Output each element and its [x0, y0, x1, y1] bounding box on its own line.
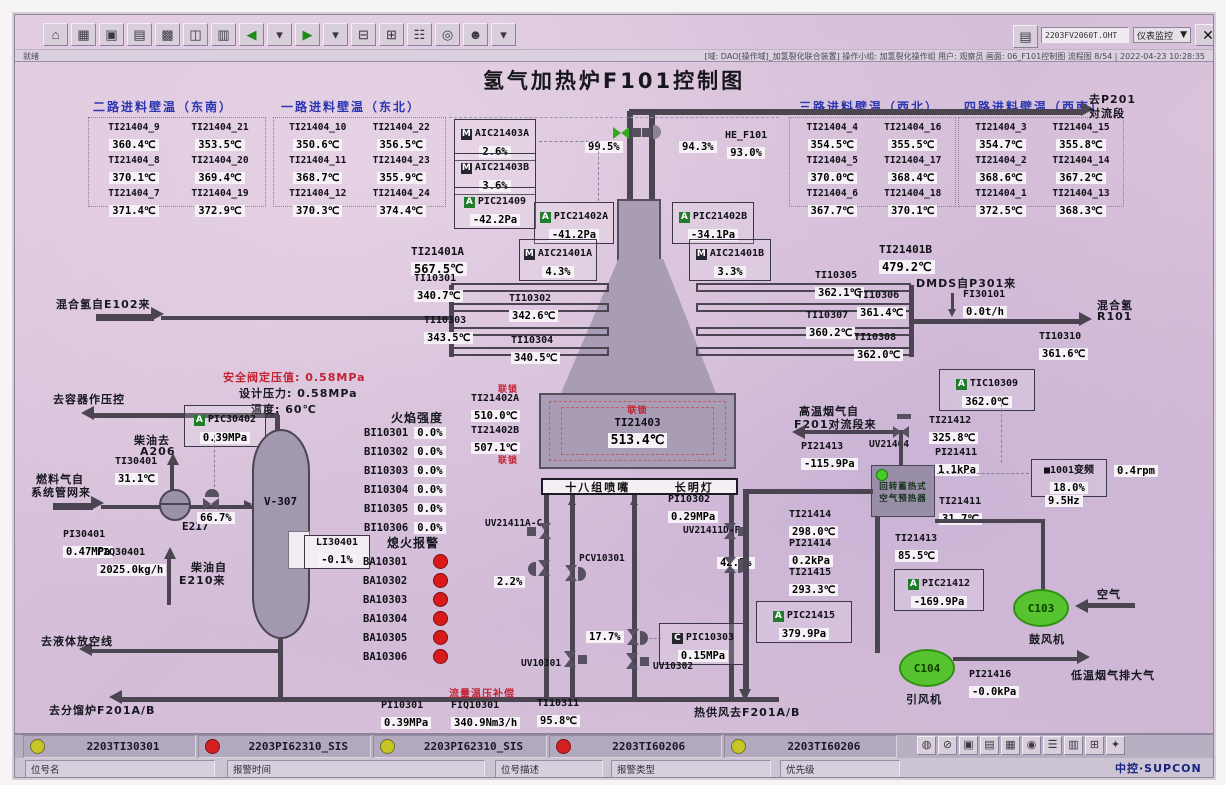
label-mix-h2-in: 混合氢自E102来	[56, 296, 150, 312]
tag-value: 369.4℃	[195, 172, 244, 184]
tag-value: 85.5℃	[895, 550, 938, 562]
flow-arrow	[1079, 312, 1092, 326]
tag-value: 31.1℃	[115, 473, 158, 485]
wall-temp-point[interactable]: TI21404_13 368.3℃	[1041, 188, 1121, 218]
instrument-ti21412[interactable]: TI21412325.8℃	[929, 415, 978, 445]
tag-value: 361.4℃	[857, 307, 906, 319]
tag-label: PI21411	[935, 447, 979, 458]
tag-label: BI10305	[364, 503, 408, 515]
sys-grid[interactable]: ▦	[1001, 736, 1020, 755]
pipe	[911, 319, 1081, 324]
tag-value: 368.6℃	[976, 172, 1025, 184]
label-hot-air-out: 热供风去F201A/B	[694, 704, 800, 720]
instrument-ti21402a[interactable]: TI21402A510.0℃	[471, 393, 520, 423]
mode-badge: A	[194, 415, 205, 426]
tag-label: AIC21401B	[710, 248, 764, 259]
pipe	[749, 489, 873, 494]
wall-temp-point[interactable]: TI21404_12 370.3℃	[276, 188, 360, 218]
tag-value: 340.7℃	[414, 290, 463, 302]
tag-value: 361.6℃	[1039, 348, 1088, 360]
toolbar-page-next[interactable]: ⊞	[379, 23, 404, 46]
toolbar-overview[interactable]: ▦	[71, 23, 96, 46]
toolbar-icon: ▦	[77, 27, 89, 42]
wall-temp-point[interactable]: TI21404_4 354.5℃	[792, 122, 873, 152]
tag-value: 2025.0kg/h	[97, 564, 166, 576]
pipe	[570, 495, 575, 699]
label-safety-set: 安全阀定压值: 0.58MPa	[223, 369, 366, 385]
tag-label: TI21413	[895, 533, 938, 544]
tag-label: TI21404_18	[873, 188, 954, 199]
flame-intensity-row[interactable]: BI10305 0.0%	[364, 499, 446, 518]
sys-misc[interactable]: ✦	[1106, 736, 1125, 755]
sys-screen[interactable]: ▣	[959, 736, 978, 755]
field-tag-desc: 位号描述	[495, 760, 603, 778]
flame-intensity-row[interactable]: BI10304 0.0%	[364, 480, 446, 499]
tag-label: TI10305	[815, 270, 864, 281]
tag-label: TI21404_14	[1041, 155, 1121, 166]
tag-value: 355.9℃	[377, 172, 426, 184]
mode-badge: A	[679, 212, 690, 223]
flow-arrow	[244, 500, 252, 508]
instrument-ti30401[interactable]: TI3040131.1℃	[115, 456, 158, 486]
wall-temp-point[interactable]: TI21404_6 367.7℃	[792, 188, 873, 218]
system-icon: ▤	[984, 739, 994, 751]
tag-value: 0.0%	[414, 503, 445, 515]
label-to-vessel: 去容器作压控	[53, 391, 125, 407]
wall-temp-point[interactable]: TI21404_1 372.5℃	[961, 188, 1041, 218]
burner-group-label: 十八组喷嘴	[565, 479, 630, 495]
panel-combo[interactable]: 仪表监控▼	[1133, 27, 1191, 43]
alarm-banner-cell[interactable]: 2203PI62310_SIS	[373, 735, 546, 758]
instrument-ti21413[interactable]: TI2141385.5℃	[895, 533, 938, 563]
pipe	[1041, 519, 1045, 595]
instrument-li30401[interactable]: LI30401-0.1%	[304, 535, 370, 569]
valve-uv10301[interactable]	[564, 651, 576, 667]
close-button[interactable]: ✕	[1195, 24, 1214, 46]
flameout-alarm-row[interactable]: BA10301	[363, 552, 448, 571]
mode-badge: M	[696, 249, 707, 260]
wall-temp-point[interactable]: TI21404_7 371.4℃	[91, 188, 177, 218]
alarm-banner-cell[interactable]: 2203TI30301	[23, 735, 196, 758]
field-tag-name: 位号名	[25, 760, 215, 778]
tag-label: TI10303	[424, 315, 473, 326]
wall-temp-point[interactable]: TI21404_17 368.4℃	[873, 155, 954, 185]
alarm-dot	[433, 611, 448, 626]
flow-arrow	[568, 497, 576, 505]
tag-value: 362.0℃	[854, 349, 903, 361]
pipe	[91, 649, 279, 653]
wall-temp-point[interactable]: TI21404_24 374.4℃	[360, 188, 444, 218]
alarm-tag: 2203TI60206	[752, 740, 896, 753]
toolbar-book[interactable]: ☷	[407, 23, 432, 46]
valve-pic10303[interactable]	[627, 629, 639, 645]
tag-label: BA10306	[363, 651, 407, 663]
tag-label: TI21404_13	[1041, 188, 1121, 199]
signal-line	[539, 141, 599, 142]
flameout-alarm-list: BA10301 BA10302 BA10303 BA10304 BA10305 …	[363, 552, 448, 666]
toolbar-icon: ⌂	[52, 27, 60, 42]
wall-temp-point[interactable]: TI21404_3 354.7℃	[961, 122, 1041, 152]
instrument-ti21414[interactable]: TI21414298.0℃	[789, 509, 838, 539]
tag-label: PIC21409	[478, 196, 526, 207]
preheater-label-2: 空气预热器	[879, 494, 927, 504]
instrument-ti10303[interactable]: TI10303343.5℃	[424, 315, 473, 345]
damper-a-output: 99.5%	[585, 141, 623, 153]
valve-pcv10301[interactable]	[565, 565, 577, 581]
tag-label: BI10302	[364, 446, 408, 458]
flow-arrow	[739, 689, 751, 701]
system-icon: ⊞	[1090, 739, 1099, 751]
tag-label: TI21404_6	[792, 188, 873, 199]
instrument-ti21403[interactable]: 联锁 TI21403 513.4℃	[541, 403, 734, 448]
burner-valve-a[interactable]	[538, 560, 550, 576]
tag-label: HE_F101	[725, 130, 767, 141]
instrument-ti10311[interactable]: TI1031195.8℃	[537, 698, 580, 728]
tag-value: 0.39MPa	[381, 717, 431, 729]
tag-value: 293.3℃	[789, 584, 838, 596]
valve-actuator	[640, 657, 649, 666]
tag-label: TI10304	[511, 335, 560, 346]
supcon-logo: 中控·SUPCON	[1115, 760, 1202, 776]
mode-badge: A	[773, 611, 784, 622]
tag-value: 0.39MPa	[200, 432, 250, 444]
tag-label: AIC21401A	[538, 248, 592, 259]
wall-temp-point[interactable]: TI21404_16 355.5℃	[873, 122, 954, 152]
tag-label: TI21404_5	[792, 155, 873, 166]
tag-value: 379.9Pa	[779, 628, 829, 640]
toolbar-home[interactable]: ⌂	[43, 23, 68, 46]
toolbar-icon: ☷	[414, 27, 426, 42]
alarm-dot	[433, 573, 448, 588]
toolbar-trend[interactable]: ▤	[127, 23, 152, 46]
toolbar-icon: ☻	[469, 27, 483, 42]
tag-label: PI21414	[789, 538, 833, 549]
tag-label: TI21401A	[411, 245, 467, 258]
damper-valve-b[interactable]	[653, 125, 661, 139]
tag-value: 340.5℃	[511, 352, 560, 364]
tag-label: TI21404_12	[276, 188, 360, 199]
valve-actuator	[640, 631, 648, 645]
screen-file-input[interactable]	[1041, 27, 1129, 43]
wall-temp-point[interactable]: TI21404_9 360.4℃	[91, 122, 177, 152]
tag-label: TI21404_24	[360, 188, 444, 199]
instrument-freq1001[interactable]: ■1001变频18.0%	[1031, 459, 1107, 497]
signal-line	[1001, 399, 1002, 463]
tag-value: 0.0t/h	[963, 306, 1007, 318]
tag-label: TI21403	[541, 416, 734, 429]
wall-temp-point[interactable]: TI21404_21 353.5℃	[177, 122, 263, 152]
tag-label: TI21404_19	[177, 188, 263, 199]
tag-value: 355.5℃	[888, 139, 937, 151]
pipe	[53, 503, 93, 510]
label-blower: 鼓风机	[1029, 631, 1065, 647]
alarm-banner-cell[interactable]: 2203TI60206	[549, 735, 722, 758]
toolbar-faceplate[interactable]: ◫	[183, 23, 208, 46]
instrument-ti21415[interactable]: TI21415293.3℃	[789, 567, 838, 597]
tag-label: TI21404_9	[91, 122, 177, 133]
tag-value: 360.2℃	[806, 327, 855, 339]
freq-hz-value: 9.5Hz	[1045, 495, 1083, 507]
pipe	[953, 657, 1081, 661]
toolbar-group-display[interactable]: ▩	[155, 23, 180, 46]
instrument-tic10309[interactable]: ATIC10309362.0℃	[939, 369, 1035, 411]
sys-horn[interactable]: ◍	[917, 736, 936, 755]
toolbar-page-prev[interactable]: ⊟	[351, 23, 376, 46]
tag-label: AIC21403A	[475, 128, 529, 139]
signal-line	[649, 638, 661, 639]
signal-line	[937, 473, 1029, 474]
label-e210: E210来	[179, 572, 225, 588]
flameout-alarm-row[interactable]: BA10302	[363, 571, 448, 590]
tag-value: 513.4℃	[608, 433, 668, 448]
toolbar-icon: ▾	[500, 27, 507, 42]
instrument-aic21401a[interactable]: MAIC21401A4.3%	[519, 239, 597, 281]
tag-value: -0.1%	[318, 554, 356, 566]
tag-value: 0.2kPa	[789, 555, 833, 567]
fan-c104[interactable]: C104	[899, 649, 955, 687]
valve-uv21411ac[interactable]	[539, 523, 551, 539]
tag-label: PI21416	[969, 669, 1019, 680]
flameout-alarm-row[interactable]: BA10305	[363, 628, 448, 647]
exchanger-e217[interactable]	[159, 489, 191, 521]
instrument-ti21402b[interactable]: TI21402B507.1℃	[471, 425, 520, 455]
instrument-fi30101[interactable]: FI301010.0t/h	[963, 289, 1007, 319]
tag-label: TI10301	[414, 273, 463, 284]
instrument-pi21414[interactable]: PI214140.2kPa	[789, 538, 833, 568]
wall-temp-point[interactable]: TI21404_19 372.9℃	[177, 188, 263, 218]
status-bar: 就绪 [域: DAO[操作域]_加氢裂化联合装置] 操作小组: 加氢裂化操作组 …	[15, 49, 1213, 62]
instrument-pic21415[interactable]: APIC21415379.9Pa	[756, 601, 852, 643]
toolbar-back-menu[interactable]: ▾	[267, 23, 292, 46]
tag-label: TI21404_7	[91, 188, 177, 199]
instrument-fiq10301[interactable]: FIQ10301340.9Nm3/h	[451, 700, 520, 730]
tag-label: BI10306	[364, 522, 408, 534]
wall-temp-point[interactable]: TI21404_15 355.8℃	[1041, 122, 1121, 152]
toolbar-search[interactable]: ◎	[435, 23, 460, 46]
label-to-fractionator: 去分馏炉F201A/B	[49, 702, 155, 718]
sys-tile[interactable]: ⊞	[1085, 736, 1104, 755]
tag-value: 0.0%	[414, 427, 445, 439]
instrument-pi10301[interactable]: PI103010.39MPa	[381, 700, 431, 730]
instrument-ti21401b[interactable]: TI21401B479.2℃	[879, 243, 935, 275]
tag-label: TI21411	[939, 496, 982, 507]
toolbar-icon: ⊞	[386, 27, 397, 42]
close-icon: ✕	[1202, 28, 1214, 44]
tag-label: TI10311	[537, 698, 580, 709]
label-uv21404: UV21404	[869, 439, 909, 450]
valve-uv21411df[interactable]	[724, 523, 736, 539]
wall-temp-point[interactable]: TI21404_23 355.9℃	[360, 155, 444, 185]
tag-value: 0.0%	[414, 484, 445, 496]
screen-file-button[interactable]: ▤	[1013, 25, 1038, 48]
wall-temp-point[interactable]: TI21404_5 370.0℃	[792, 155, 873, 185]
pipe	[935, 519, 1045, 523]
flame-intensity-row[interactable]: BI10303 0.0%	[364, 461, 446, 480]
instrument-pic10303[interactable]: CPIC103030.15MPa	[659, 623, 747, 665]
toolbar-report[interactable]: ▥	[211, 23, 236, 46]
instrument-pic30402[interactable]: APIC304020.39MPa	[184, 405, 266, 447]
toolbar-user[interactable]: ☻	[463, 23, 488, 46]
alarm-banner-cell[interactable]: 2203TI60206	[724, 735, 897, 758]
wall-temp-point[interactable]: TI21404_14 367.2℃	[1041, 155, 1121, 185]
flameout-alarm-title: 熄火报警	[387, 534, 439, 551]
flame-intensity-list: BI10301 0.0% BI10302 0.0% BI10303 0.0% B…	[364, 423, 446, 537]
wall-temp-point[interactable]: TI21404_22 356.5℃	[360, 122, 444, 152]
sys-print[interactable]: ▤	[980, 736, 999, 755]
tag-label: TI21402B	[471, 425, 520, 436]
tag-label: TI21404_1	[961, 188, 1041, 199]
system-icon: ◍	[922, 739, 932, 751]
instrument-pic21402a[interactable]: APIC21402A-41.2Pa	[534, 202, 614, 244]
label-r101: R101	[1097, 310, 1132, 323]
instrument-ti10304[interactable]: TI10304340.5℃	[511, 335, 560, 365]
instrument-pi10302[interactable]: PI103020.29MPa	[668, 494, 718, 524]
flameout-alarm-row[interactable]: BA10303	[363, 590, 448, 609]
tag-value: 325.8℃	[929, 432, 978, 444]
toolbar-icon: ▾	[276, 27, 283, 42]
wall-temp-panel-2: TI21404_9 360.4℃ TI21404_21 353.5℃ TI214…	[88, 117, 266, 207]
instrument-he-f101[interactable]: HE_F101 93.0%	[725, 130, 767, 160]
wall-temp-point[interactable]: TI21404_10 350.6℃	[276, 122, 360, 152]
tag-label: TI21402A	[471, 393, 520, 404]
label-v307: V-307	[264, 495, 297, 508]
toolbar-forward-menu[interactable]: ▾	[323, 23, 348, 46]
diagram-canvas: ⌂ ▦ ▣ ▤ ▩ ◫ ▥ ◀ ▾ ▶ ▾ ⊟ ⊞ ☷ ◎ ☻ ▾ ▤ 仪表监控…	[14, 14, 1214, 778]
instrument-pic21402b[interactable]: APIC21402B-34.1Pa	[672, 202, 754, 244]
valve-actuator	[578, 567, 586, 581]
toolbar-window[interactable]: ▣	[99, 23, 124, 46]
tag-label: TI21412	[929, 415, 978, 426]
tag-value: 368.3℃	[1056, 205, 1105, 217]
tag-value: 370.3℃	[293, 205, 342, 217]
tag-label: TI10306	[857, 290, 906, 301]
mode-badge: M	[461, 129, 472, 140]
wall-temp-point[interactable]: TI21404_18 370.1℃	[873, 188, 954, 218]
pipe	[96, 314, 154, 321]
flameout-alarm-row[interactable]: BA10306	[363, 647, 448, 666]
flow-arrow	[164, 547, 176, 559]
toolbar-icon: ▥	[217, 27, 229, 42]
toolbar-user-menu[interactable]: ▾	[491, 23, 516, 46]
valve-actuator	[528, 562, 536, 576]
valve-actuator	[205, 489, 219, 497]
pipe	[1087, 603, 1135, 608]
instrument-fiq30401[interactable]: FIQ304012025.0kg/h	[97, 547, 166, 577]
wall-temp-point[interactable]: TI21404_8 370.1℃	[91, 155, 177, 185]
valve-output: 2.2%	[494, 576, 525, 588]
system-toolbar: ◍ ⊘ ▣ ▤ ▦ ◉ ☰ ▥ ⊞ ✦	[917, 736, 1125, 755]
flame-intensity-row[interactable]: BI10301 0.0%	[364, 423, 446, 442]
preheater-label-1: 回转蓄热式	[879, 482, 927, 492]
wall-temp-panel-4: TI21404_3 354.7℃ TI21404_15 355.8℃ TI214…	[958, 117, 1124, 207]
instrument-pic21412[interactable]: APIC21412-169.9Pa	[894, 569, 984, 611]
instrument-ti10301[interactable]: TI10301340.7℃	[414, 273, 463, 303]
tag-label: TI21404_20	[177, 155, 263, 166]
damper-valve-a[interactable]	[613, 127, 629, 139]
alarm-cells: 2203TI30301 2203PI62310_SIS 2203PI62310_…	[23, 735, 897, 758]
system-icon: ▥	[1068, 739, 1078, 751]
toolbar-back[interactable]: ◀	[239, 23, 264, 46]
wall-temp-point[interactable]: TI21404_11 368.7℃	[276, 155, 360, 185]
flameout-alarm-row[interactable]: BA10304	[363, 609, 448, 628]
status-left: 就绪	[23, 51, 39, 60]
fan-c104-label: C104	[914, 663, 941, 674]
tag-value: 374.4℃	[377, 205, 426, 217]
instrument-pic21409[interactable]: APIC21409-42.2Pa	[454, 187, 536, 229]
instrument-ti10302[interactable]: TI10302342.6℃	[509, 293, 558, 323]
tag-label: BA10302	[363, 575, 407, 587]
pipe	[875, 517, 880, 653]
tag-value: 354.5℃	[808, 139, 857, 151]
sys-list[interactable]: ☰	[1043, 736, 1062, 755]
tag-label: AIC21403B	[475, 162, 529, 173]
instrument-aic21401b[interactable]: MAIC21401B3.3%	[689, 239, 771, 281]
fan-c103[interactable]: C103	[1013, 589, 1069, 627]
tag-label: ■1001变频	[1035, 461, 1103, 476]
tag-label: TI10307	[806, 310, 855, 321]
alarm-tag: 2203TI30301	[51, 740, 195, 753]
combo-value: 仪表监控	[1137, 29, 1173, 42]
wall-temp-point[interactable]: TI21404_2 368.6℃	[961, 155, 1041, 185]
tag-value: 370.1℃	[109, 172, 158, 184]
label-flow-compensation: 流量温压补偿	[449, 685, 515, 700]
label-fuel-gas-2: 系统管网来	[31, 484, 91, 500]
tag-value: 343.5℃	[424, 332, 473, 344]
tag-value: 479.2℃	[879, 260, 935, 274]
tag-label: LI30401	[308, 537, 366, 548]
instrument-ti10310[interactable]: TI10310361.6℃	[1039, 331, 1088, 361]
alarm-dot	[433, 554, 448, 569]
dcs-screen: ⌂ ▦ ▣ ▤ ▩ ◫ ▥ ◀ ▾ ▶ ▾ ⊟ ⊞ ☷ ◎ ☻ ▾ ▤ 仪表监控…	[14, 14, 1214, 778]
sys-report[interactable]: ▥	[1064, 736, 1083, 755]
pipe	[899, 433, 903, 466]
alarm-banner-cell[interactable]: 2203PI62310_SIS	[198, 735, 371, 758]
instrument-ti10308[interactable]: TI10308362.0℃	[854, 332, 903, 362]
mode-badge: M	[461, 163, 472, 174]
mode-badge: C	[672, 633, 683, 644]
instrument-pi21413[interactable]: PI21413-115.9Pa	[801, 441, 858, 471]
tag-value: 367.2℃	[1056, 172, 1105, 184]
mode-badge: A	[908, 579, 919, 590]
field-alarm-time: 报警时间	[227, 760, 485, 778]
sys-alarm[interactable]: ◉	[1022, 736, 1041, 755]
tag-label: TI21404_16	[873, 122, 954, 133]
tag-value: 371.4℃	[109, 205, 158, 217]
label-pcv10301: PCV10301	[579, 553, 625, 564]
alarm-status-dot	[30, 739, 45, 754]
toolbar-forward[interactable]: ▶	[295, 23, 320, 46]
flame-intensity-row[interactable]: BI10302 0.0%	[364, 442, 446, 461]
field-priority: 优先级	[780, 760, 900, 778]
instrument-pi21416[interactable]: PI21416-0.0kPa	[969, 669, 1019, 699]
system-icon: ✦	[1111, 739, 1120, 751]
valve-uv10302[interactable]	[626, 653, 638, 669]
instrument-ti10307[interactable]: TI10307360.2℃	[806, 310, 855, 340]
tag-value: 353.5℃	[195, 139, 244, 151]
wall-temp-point[interactable]: TI21404_20 369.4℃	[177, 155, 263, 185]
instrument-ti10306[interactable]: TI10306361.4℃	[857, 290, 906, 320]
valve-actuator	[632, 128, 641, 137]
fuel-control-valve[interactable]	[203, 498, 219, 510]
label-induced-fan: 引风机	[906, 691, 942, 707]
tag-value: 3.3%	[714, 266, 745, 278]
toolbar-icon: ▾	[332, 27, 339, 42]
chevron-down-icon: ▼	[1180, 30, 1187, 40]
furnace-radiant-box: 联锁 TI21403 513.4℃	[539, 393, 736, 469]
burner-valve-b[interactable]	[724, 557, 736, 573]
sys-lock[interactable]: ⊘	[938, 736, 957, 755]
flow-arrow	[630, 497, 638, 505]
